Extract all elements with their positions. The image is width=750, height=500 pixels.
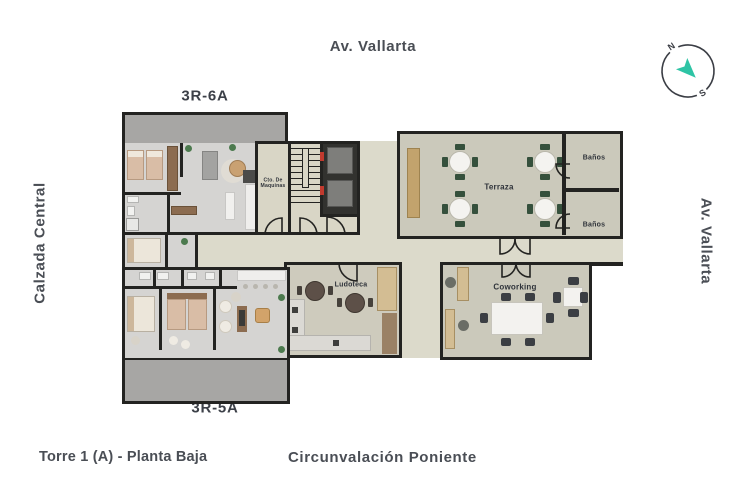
bed xyxy=(127,296,155,332)
partition-wall xyxy=(159,288,162,350)
bed xyxy=(167,299,186,330)
cabinet xyxy=(377,267,397,311)
play-table xyxy=(345,293,365,313)
plaza-gap xyxy=(402,262,440,358)
accent-chair xyxy=(255,308,270,323)
unit-3r5a xyxy=(122,267,290,360)
stool xyxy=(253,284,258,289)
armchair xyxy=(219,300,232,313)
round-table xyxy=(534,151,556,173)
sofa xyxy=(289,335,371,351)
partition-wall xyxy=(165,235,168,267)
round-table xyxy=(534,198,556,220)
floor-plan-canvas: Av. Vallarta Calzada Central Av. Vallart… xyxy=(0,0,750,500)
cushion xyxy=(333,340,339,346)
plant xyxy=(181,238,188,245)
conference-table xyxy=(491,302,543,335)
plant xyxy=(229,144,236,151)
plant xyxy=(278,346,285,353)
stool xyxy=(131,336,140,345)
unit-3r6a-bedroom-wing xyxy=(122,235,198,267)
terrace-table-group xyxy=(442,144,478,180)
partition-wall xyxy=(180,143,183,177)
partition-wall xyxy=(181,270,184,286)
stair-landing xyxy=(302,148,309,188)
desk xyxy=(445,309,455,349)
elevator-shaft xyxy=(320,141,360,217)
compass-needle-icon xyxy=(676,58,701,83)
elevator-cab xyxy=(327,147,353,174)
elevator-cab xyxy=(327,180,353,207)
elevator-lobby xyxy=(320,217,360,235)
machine-room-label-line1: Cto. De xyxy=(261,177,286,183)
bathroom-bottom-label: Baños xyxy=(583,222,605,229)
shower xyxy=(126,218,139,231)
bench xyxy=(171,206,197,215)
partition-wall xyxy=(125,286,237,289)
sink xyxy=(127,196,139,203)
street-label-left: Calzada Central xyxy=(32,182,49,304)
machine-room: Cto. De Maquinas xyxy=(255,141,291,235)
bathroom-divider-wall xyxy=(562,134,566,235)
desk-chair xyxy=(445,277,456,288)
terrace-table-group xyxy=(527,191,563,227)
unit-3r5a-patio xyxy=(122,360,290,404)
kitchen-island xyxy=(225,192,235,220)
round-table xyxy=(449,198,471,220)
street-label-right: Av. Vallarta xyxy=(698,198,715,284)
bed xyxy=(146,150,163,180)
bed xyxy=(127,150,144,180)
elevator-call-marker xyxy=(320,186,324,195)
wardrobe xyxy=(167,146,178,191)
playroom-label: Ludoteca xyxy=(335,282,368,289)
play-table xyxy=(305,281,325,301)
terrace-bench xyxy=(407,148,420,218)
sink xyxy=(139,272,151,280)
tv xyxy=(239,310,245,326)
pouf xyxy=(169,336,178,345)
pouf xyxy=(181,340,190,349)
partition-wall xyxy=(167,194,170,232)
terrace-label: Terraza xyxy=(484,183,513,192)
kitchen-counter xyxy=(237,270,286,281)
desk-chair xyxy=(458,320,469,331)
plant xyxy=(185,145,192,152)
terrace-room: Terraza Baños Baños xyxy=(397,131,623,239)
street-label-bottom: Circunvalación Poniente xyxy=(288,449,477,466)
unit-3r6a xyxy=(122,143,258,235)
toilet xyxy=(205,272,215,280)
playroom: Ludoteca xyxy=(284,262,402,358)
stool xyxy=(273,284,278,289)
toilet xyxy=(187,272,197,280)
stool xyxy=(243,284,248,289)
machine-room-label-line2: Maquinas xyxy=(261,184,286,190)
corridor xyxy=(197,235,623,262)
bathroom-divider-wall xyxy=(565,188,619,192)
compass: N S xyxy=(650,33,726,109)
desk xyxy=(457,267,469,301)
toilet xyxy=(127,206,135,216)
partition-wall xyxy=(219,270,222,286)
bed xyxy=(188,299,207,330)
sink xyxy=(157,272,169,280)
partition-wall xyxy=(153,270,156,286)
unit-label-3r6a: 3R-6A xyxy=(181,88,228,105)
partition-wall xyxy=(213,288,216,350)
shelf xyxy=(382,313,397,354)
coworking-label: Coworking xyxy=(493,283,536,292)
refrigerator xyxy=(243,170,255,183)
coworking-room: Coworking xyxy=(440,262,592,360)
compass-north-label: N xyxy=(666,41,677,53)
armchair xyxy=(219,320,232,333)
round-table xyxy=(449,151,471,173)
partition-wall xyxy=(125,192,181,195)
stairwell xyxy=(288,141,323,235)
boundary-wall xyxy=(592,262,623,266)
terrace-table-group xyxy=(442,191,478,227)
street-label-top: Av. Vallarta xyxy=(330,38,416,55)
plant xyxy=(278,294,285,301)
stool xyxy=(263,284,268,289)
side-table xyxy=(231,292,241,302)
plan-title: Torre 1 (A) - Planta Baja xyxy=(39,449,207,465)
bed xyxy=(127,238,161,263)
plaza-strip xyxy=(360,141,397,237)
elevator-call-marker xyxy=(320,152,324,161)
cushion xyxy=(292,327,298,333)
bathroom-top-label: Baños xyxy=(583,155,605,162)
terrace-table-group xyxy=(527,144,563,180)
cushion xyxy=(292,307,298,313)
sofa xyxy=(202,151,218,180)
